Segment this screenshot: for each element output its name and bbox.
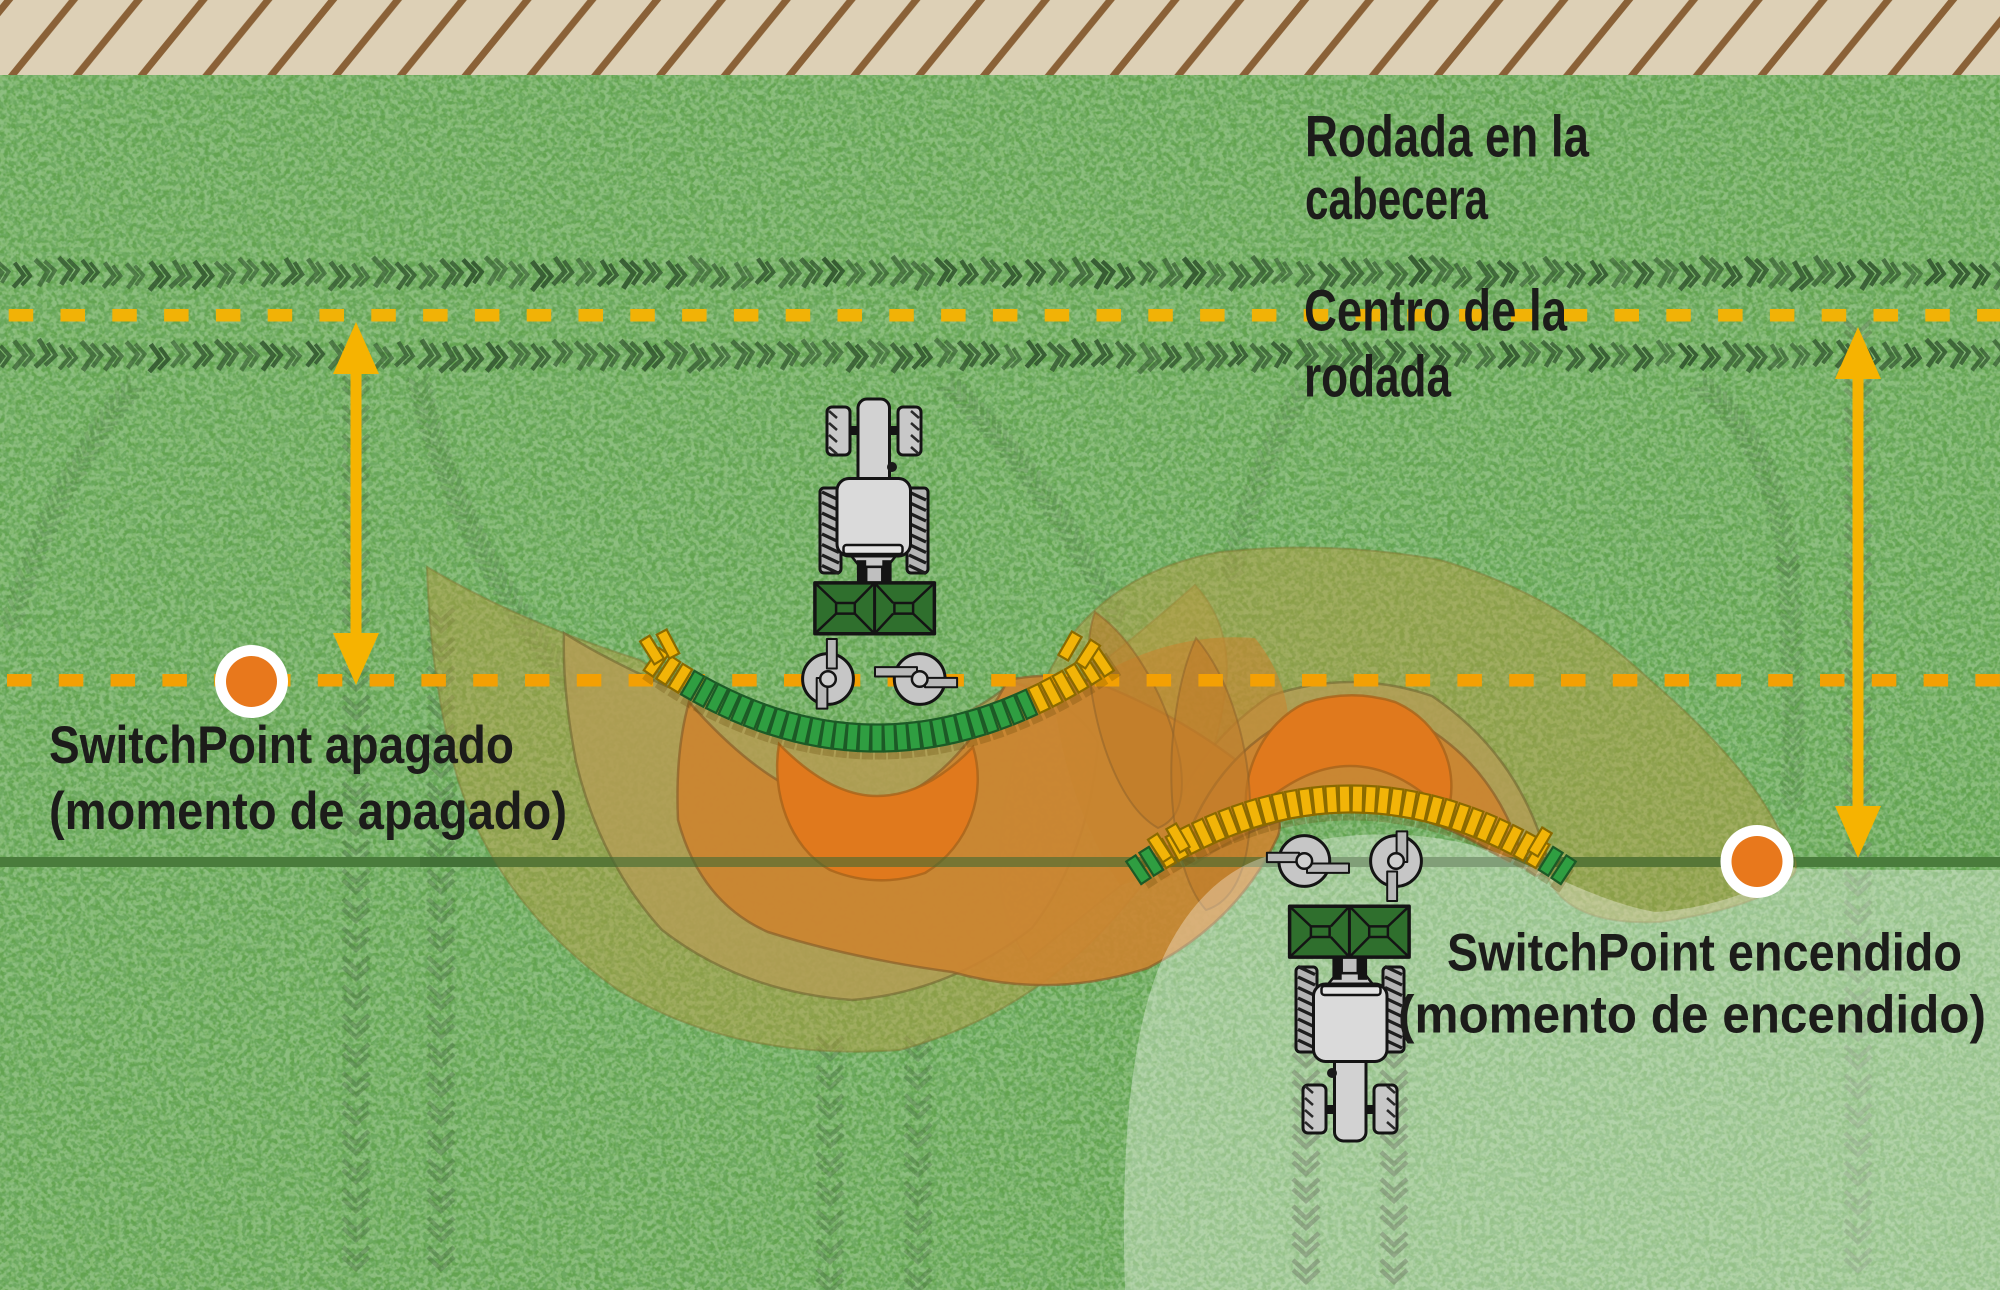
svg-text:Rodada en la: Rodada en la — [1305, 105, 1590, 170]
svg-text:(momento de apagado): (momento de apagado) — [49, 782, 567, 841]
svg-text:SwitchPoint encendido: SwitchPoint encendido — [1447, 924, 1962, 983]
svg-text:SwitchPoint apagado: SwitchPoint apagado — [49, 716, 514, 775]
svg-text:Centro de la: Centro de la — [1304, 278, 1568, 343]
svg-text:rodada: rodada — [1304, 345, 1452, 410]
svg-text:(momento de encendido): (momento de encendido) — [1398, 986, 1986, 1045]
svg-text:cabecera: cabecera — [1305, 167, 1489, 232]
